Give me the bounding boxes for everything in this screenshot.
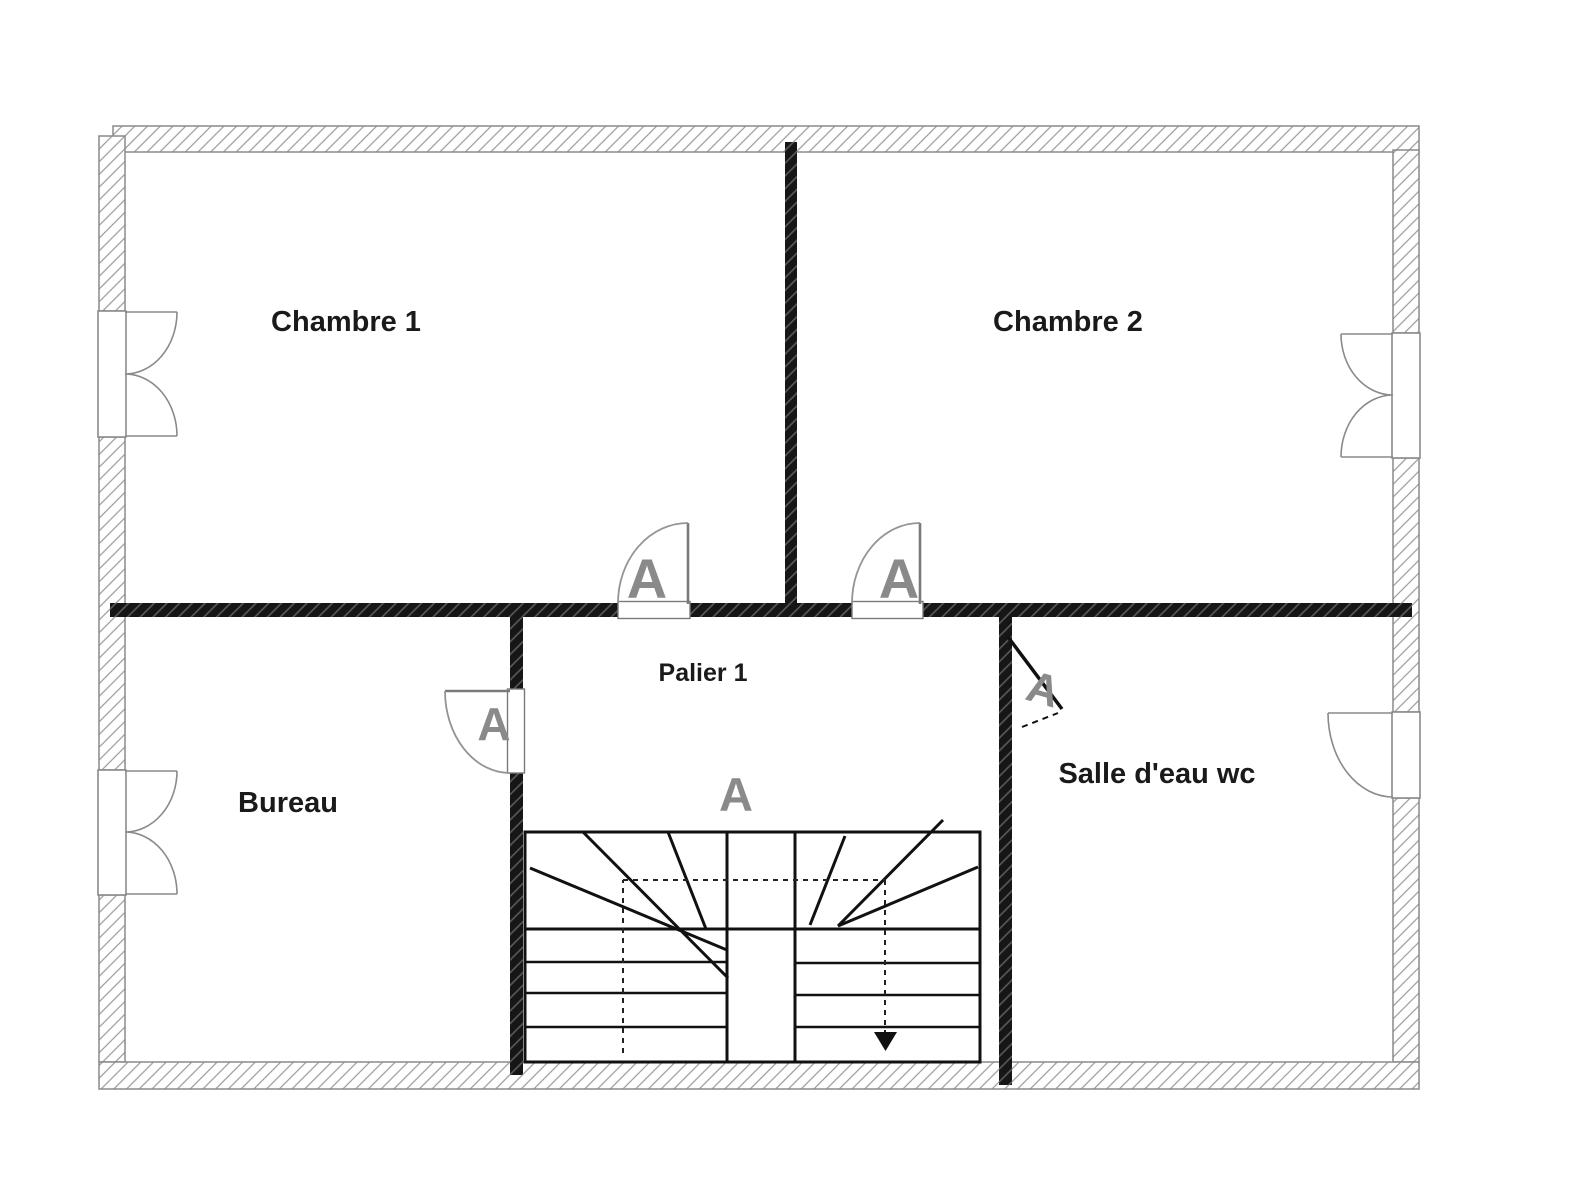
- outer-wall-right-upper: [1393, 150, 1419, 333]
- window-frame: [98, 311, 126, 437]
- floor-plan-canvas: A A A A A Chambre: [0, 0, 1571, 1200]
- interior-wall-mid-center-segment: [690, 603, 852, 617]
- room-label-bureau: Bureau: [238, 787, 338, 819]
- interior-wall-bureau-palier-lower: [510, 773, 523, 1075]
- outer-wall-bottom: [99, 1062, 1419, 1089]
- door-swing-label-chambre-2: A: [879, 547, 919, 610]
- stair-section-label: A: [719, 768, 753, 821]
- window-frame: [1392, 712, 1420, 798]
- floor-plan: A A A A A Chambre: [0, 0, 1571, 1200]
- room-label-palier-1: Palier 1: [659, 659, 748, 687]
- outer-wall-left-lower: [99, 895, 125, 1062]
- interior-wall-chambre-divider: [785, 142, 797, 603]
- door-swing-label-bureau: A: [477, 698, 510, 750]
- window-frame: [1392, 333, 1420, 458]
- interior-wall-salle-deau-divider: [999, 617, 1012, 1085]
- outer-wall-right-lower: [1393, 798, 1419, 1062]
- window-frame: [98, 770, 126, 895]
- door-swing-label-chambre-1: A: [627, 547, 667, 610]
- room-label-chambre-1: Chambre 1: [271, 306, 421, 338]
- outer-wall-top: [113, 126, 1419, 152]
- outer-wall-left-upper: [99, 136, 125, 311]
- room-label-chambre-2: Chambre 2: [993, 306, 1143, 338]
- interior-wall-mid-right-segment: [923, 603, 1412, 617]
- room-label-salle-deau-wc: Salle d'eau wc: [1058, 758, 1255, 790]
- interior-wall-mid-left-segment: [110, 603, 618, 617]
- outer-wall-right-middle: [1393, 458, 1419, 712]
- interior-wall-bureau-palier-upper: [510, 617, 523, 689]
